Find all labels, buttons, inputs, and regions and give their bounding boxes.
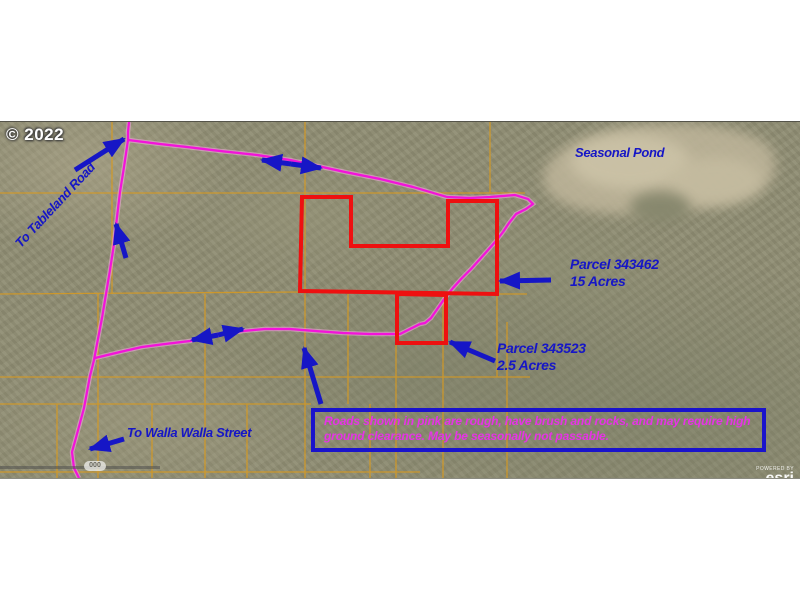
road-condition-notice: Roads shown in pink are rough, have brus… <box>311 408 766 452</box>
arrow-notice-to-road-icon <box>304 348 321 404</box>
parcel-343462-label: Parcel 343462 15 Acres <box>570 256 659 290</box>
arrow-parcel-343523-icon <box>450 342 495 361</box>
walla-walla-street-label: To Walla Walla Street <box>127 425 251 440</box>
satellite-map: © 2022 To Tableland Road Seasonal Pond P… <box>0 121 800 479</box>
parcel-343462-size: 15 Acres <box>570 273 659 290</box>
copyright-label: © 2022 <box>6 125 64 145</box>
esri-logo: esri <box>756 472 794 479</box>
arrow-to-walla-walla-icon <box>90 439 124 449</box>
seasonal-pond-label: Seasonal Pond <box>575 145 664 160</box>
parcel-343462-outline <box>300 197 497 294</box>
arrow-road-up-icon <box>116 224 126 258</box>
esri-watermark: POWERED BY esri <box>756 466 794 479</box>
double-arrow-right-icon <box>218 329 243 335</box>
arrow-parcel-343462-icon <box>500 280 551 281</box>
scale-badge: 000 <box>84 461 106 471</box>
parcel-343523-outline <box>397 294 446 343</box>
parcel-343523-name: Parcel 343523 <box>497 340 586 357</box>
parcel-343523-label: Parcel 343523 2.5 Acres <box>497 340 586 374</box>
listing-map-page: © 2022 To Tableland Road Seasonal Pond P… <box>0 0 800 600</box>
notice-line-1: Roads shown in pink are rough, have brus… <box>324 414 762 429</box>
notice-line-2: ground clearance. May be seasonally not … <box>324 429 762 444</box>
parcel-343523-size: 2.5 Acres <box>497 357 586 374</box>
parcel-343462-name: Parcel 343462 <box>570 256 659 273</box>
scale-bar <box>0 466 160 469</box>
double-arrow-left-icon <box>192 335 218 340</box>
